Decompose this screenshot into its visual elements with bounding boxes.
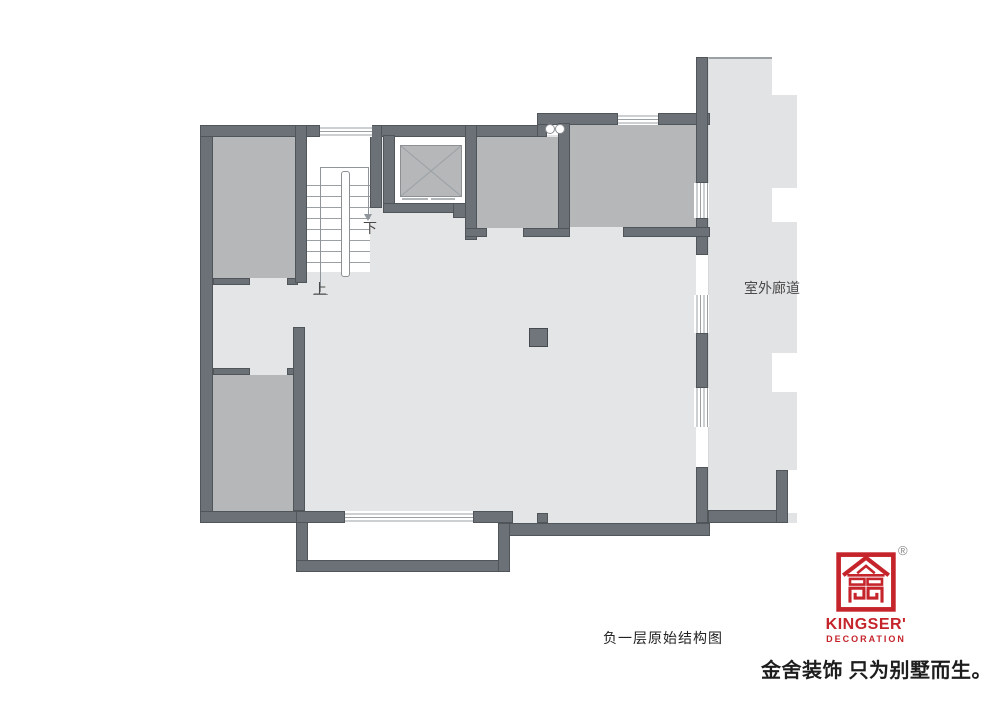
wall-pier	[537, 513, 548, 523]
stair-handrail	[341, 171, 350, 277]
wall-segment	[465, 228, 487, 237]
wall-segment	[473, 511, 513, 523]
floor-plan: 下 上	[0, 0, 1000, 707]
corridor-niche	[788, 470, 797, 513]
plan-caption: 负一层原始结构图	[588, 628, 738, 648]
elevator-door-line	[431, 198, 455, 200]
window	[694, 295, 709, 333]
wall-segment	[295, 125, 307, 283]
room-mid-top	[477, 137, 558, 228]
wall-segment	[623, 227, 710, 237]
wall-segment	[498, 523, 510, 572]
kingser-house-icon	[835, 550, 897, 614]
window	[694, 183, 709, 218]
room-upper-left	[213, 137, 295, 278]
room-lower-left	[213, 375, 293, 511]
stair-up-label: 上	[313, 284, 327, 298]
elevator-door-line	[402, 198, 428, 200]
wall-segment	[370, 125, 382, 208]
wall-segment	[296, 560, 510, 572]
corridor-niche	[772, 57, 797, 95]
wall-segment	[465, 125, 477, 240]
window	[320, 125, 372, 137]
corridor-niche	[772, 353, 797, 392]
elevator-shaft	[400, 145, 462, 197]
wall-segment	[200, 511, 308, 523]
wall-segment	[696, 333, 708, 388]
wall-segment	[696, 57, 708, 183]
down-arrow-icon	[364, 214, 372, 221]
logo-wordmark: KINGSER'	[821, 616, 911, 634]
logo-subtitle: DECORATION	[821, 634, 911, 644]
door-jamb	[213, 368, 250, 375]
wall-segment	[776, 470, 788, 523]
corridor-label: 室外廊道	[744, 283, 800, 297]
wall-segment	[293, 327, 305, 511]
wall-segment	[558, 123, 570, 237]
room-right-top	[570, 125, 696, 227]
brand-slogan: 金舍装饰 只为别墅而生。	[761, 654, 992, 683]
wall-segment	[696, 467, 708, 523]
door-jamb	[213, 278, 250, 285]
stair-down-label: 下	[363, 223, 377, 237]
window	[694, 388, 709, 427]
wall-segment	[506, 523, 710, 536]
logo-registered-mark: ®	[898, 543, 908, 558]
pipe-circle-icon	[545, 124, 555, 134]
elevator-cross-icon	[401, 146, 461, 196]
walkline	[320, 167, 369, 168]
corridor-niche	[772, 188, 797, 222]
pipe-circle-icon	[555, 124, 565, 134]
wall-segment	[383, 135, 395, 205]
structural-column	[529, 328, 548, 347]
window	[618, 113, 658, 125]
bay-window-well	[308, 523, 498, 560]
walkline	[368, 167, 369, 216]
window	[345, 511, 473, 523]
wall-segment	[523, 228, 570, 237]
stair-treads	[307, 175, 370, 273]
wall-segment	[296, 511, 345, 523]
walkline	[320, 167, 321, 292]
wall-segment	[200, 125, 213, 523]
wall-segment	[372, 125, 545, 137]
